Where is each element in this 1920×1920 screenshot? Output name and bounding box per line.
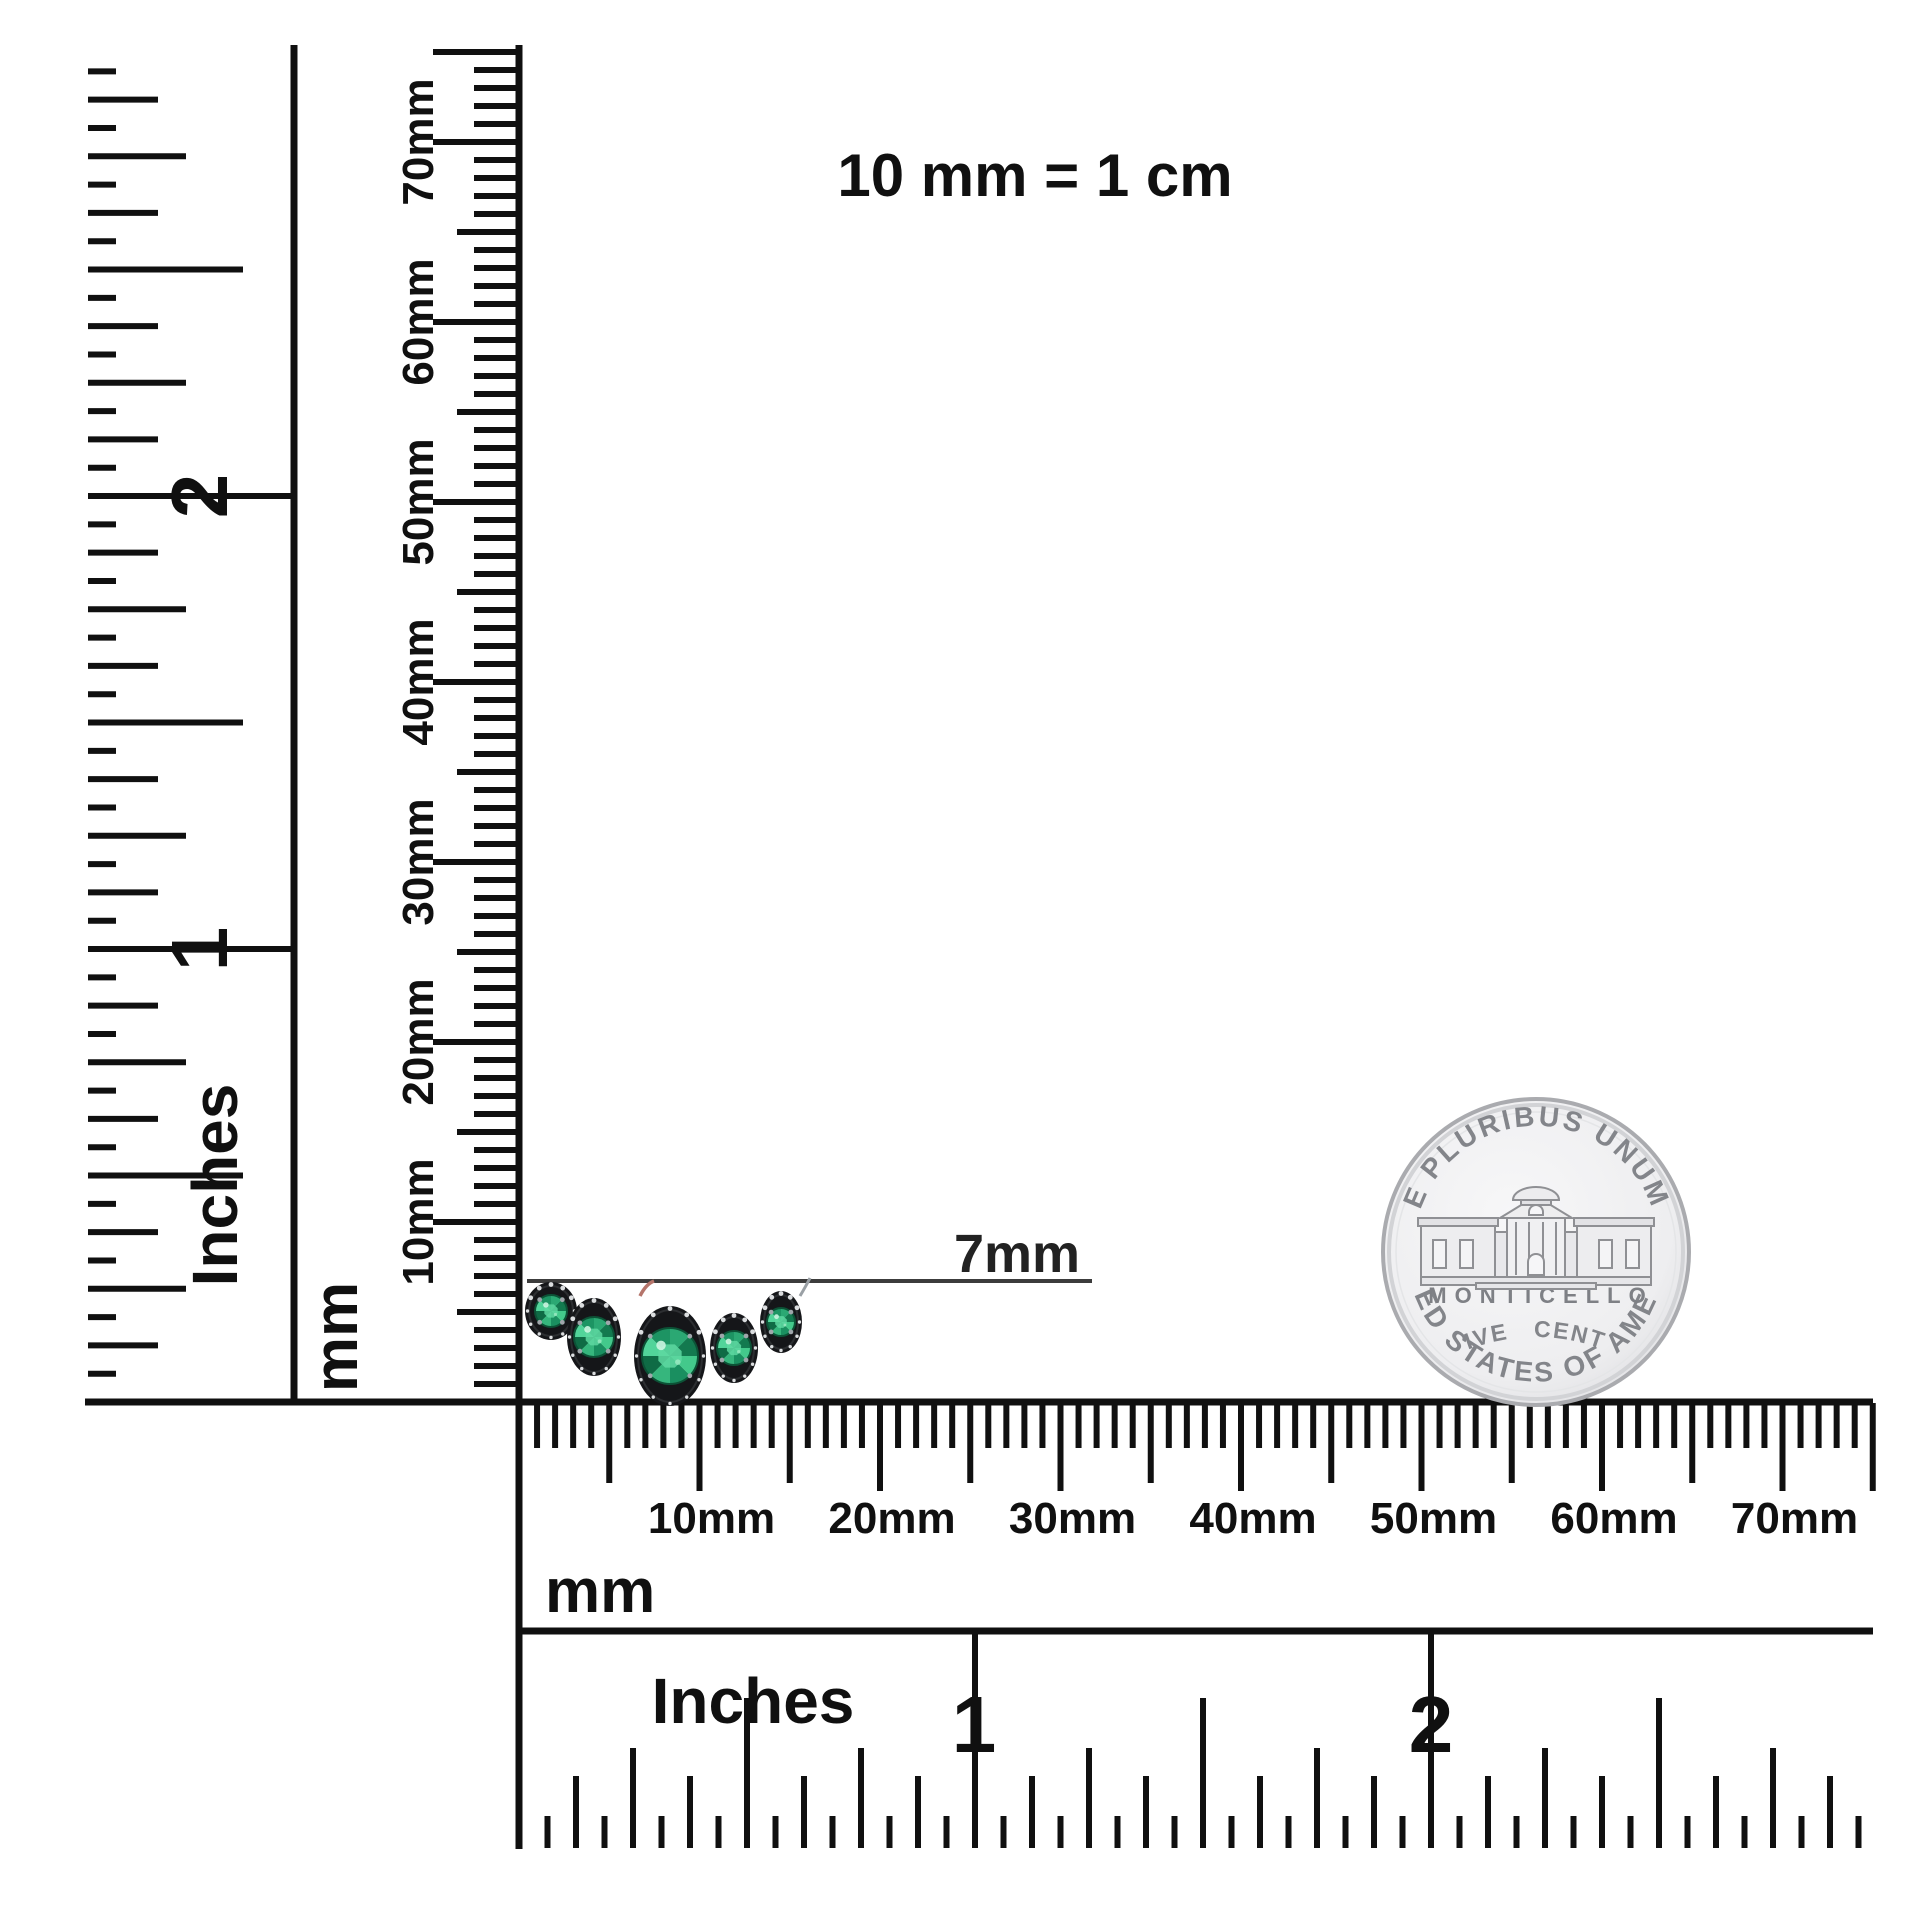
- halo-diamond-dot: [639, 1330, 644, 1335]
- halo-diamond-dot: [652, 1395, 655, 1398]
- mm-scale-label: 60mm: [1550, 1494, 1677, 1543]
- left-inches-ruler: 1 2 Inches: [88, 71, 297, 1373]
- halo-diamond-dot: [592, 1372, 595, 1375]
- left-mm-labels: 10mm20mm30mm40mm50mm60mm70mm: [394, 78, 443, 1285]
- mm-scale-label: 30mm: [394, 798, 443, 925]
- halo-diamond-dot: [613, 1316, 618, 1321]
- halo-diamond-dot: [549, 1282, 554, 1287]
- halo-diamond-dot: [763, 1335, 766, 1338]
- clasp-wire: [640, 1281, 654, 1296]
- building-steps: [1476, 1283, 1596, 1289]
- gem-glint: [656, 1341, 666, 1351]
- halo-diamond-dot: [788, 1295, 793, 1300]
- bottom-inches-number-2: 2: [1409, 1680, 1454, 1769]
- gem-glint: [675, 1359, 681, 1365]
- gem-glint: [737, 1350, 740, 1353]
- gem-glint: [584, 1326, 591, 1333]
- halo-diamond-dot: [779, 1291, 784, 1296]
- mm-scale-label: 10mm: [394, 1158, 443, 1285]
- halo-diamond-dot: [549, 1336, 552, 1339]
- gem-glint: [726, 1339, 732, 1345]
- halo-diamond-dot: [721, 1317, 726, 1322]
- mm-scale-label: 50mm: [394, 438, 443, 565]
- mm-scale-label: 20mm: [394, 978, 443, 1105]
- halo-diamond-dot: [604, 1303, 609, 1308]
- prong: [744, 1358, 749, 1363]
- halo-diamond-dot: [779, 1349, 782, 1352]
- mm-scale-label: 50mm: [1370, 1494, 1497, 1543]
- bottom-inches-ruler: 1 2 Inches: [548, 1633, 1859, 1848]
- halo-diamond-dot: [685, 1395, 688, 1398]
- halo-diamond-dot: [526, 1309, 529, 1312]
- ruler-frame: [85, 45, 1873, 1849]
- prong: [577, 1320, 582, 1325]
- left-parapet: [1418, 1218, 1498, 1226]
- halo-diamond-dot: [798, 1320, 801, 1323]
- halo-diamond-dot: [770, 1345, 773, 1348]
- halo-diamond-dot: [732, 1313, 737, 1318]
- prong: [648, 1334, 653, 1339]
- mm-scale-label: 40mm: [394, 618, 443, 745]
- prong: [788, 1329, 793, 1334]
- prong: [769, 1310, 774, 1315]
- left-mm-unit-label: mm: [302, 1282, 371, 1392]
- halo-diamond-dot: [668, 1402, 671, 1405]
- left-inches-unit-label: Inches: [179, 1084, 251, 1287]
- gem-glint: [598, 1339, 602, 1343]
- gem-glint: [774, 1314, 779, 1319]
- halo-diamond-dot: [769, 1295, 774, 1300]
- halo-diamond-dot: [795, 1335, 798, 1338]
- stone: [710, 1313, 758, 1383]
- halo-diamond-dot: [529, 1323, 532, 1326]
- halo-diamond-dot: [713, 1329, 718, 1334]
- right-parapet: [1574, 1218, 1654, 1226]
- halo-diamond-dot: [795, 1305, 800, 1310]
- halo-diamond-dot: [580, 1367, 583, 1370]
- halo-diamond-dot: [711, 1346, 714, 1349]
- halo-diamond-dot: [635, 1354, 638, 1357]
- measurement-annotation: 7mm: [527, 1224, 1092, 1284]
- halo-diamond-dot: [684, 1312, 689, 1317]
- mm-scale-label: 40mm: [1189, 1494, 1316, 1543]
- bottom-mm-unit-label: mm: [545, 1557, 655, 1626]
- halo-diamond-dot: [561, 1332, 564, 1335]
- gem-glint: [784, 1324, 787, 1327]
- halo-diamond-dot: [560, 1286, 565, 1291]
- window: [1599, 1240, 1612, 1268]
- halo-diamond-dot: [528, 1295, 533, 1300]
- pediment-window: [1529, 1205, 1543, 1215]
- bottom-inches-number-1: 1: [952, 1680, 997, 1769]
- prong: [560, 1320, 565, 1325]
- bottom-mm-ticks: [537, 1403, 1873, 1491]
- bottom-inches-unit-label: Inches: [652, 1665, 855, 1737]
- halo-diamond-dot: [714, 1363, 717, 1366]
- size-guide-diagram: 10 mm = 1 cm 1 2 Inches 10mm20mm30mm40mm…: [0, 0, 1920, 1920]
- halo-diamond-dot: [751, 1363, 754, 1366]
- halo-diamond-dot: [614, 1354, 617, 1357]
- diagram-canvas: 10 mm = 1 cm 1 2 Inches 10mm20mm30mm40mm…: [0, 0, 1920, 1920]
- mm-scale-label: 70mm: [394, 78, 443, 205]
- halo-diamond-dot: [743, 1374, 746, 1377]
- left-inches-number-2: 2: [155, 474, 244, 519]
- halo-diamond-dot: [537, 1286, 542, 1291]
- left-mm-ticks: [433, 52, 519, 1384]
- halo-diamond-dot: [639, 1378, 642, 1381]
- stone: [567, 1298, 621, 1376]
- prong: [744, 1334, 749, 1339]
- stone: [760, 1291, 802, 1353]
- halo-diamond-dot: [569, 1295, 574, 1300]
- halo-diamond-dot: [538, 1332, 541, 1335]
- prong: [606, 1349, 611, 1354]
- scale-note: 10 mm = 1 cm: [837, 142, 1232, 209]
- prong: [537, 1320, 542, 1325]
- halo-diamond-dot: [605, 1367, 608, 1370]
- halo-diamond-dot: [754, 1346, 757, 1349]
- prong: [560, 1297, 565, 1302]
- halo-diamond-dot: [732, 1379, 735, 1382]
- prong: [687, 1334, 692, 1339]
- halo-diamond-dot: [697, 1378, 700, 1381]
- prong: [720, 1358, 725, 1363]
- emerald-pendant: [525, 1282, 802, 1406]
- prong: [720, 1334, 725, 1339]
- window: [1460, 1240, 1473, 1268]
- halo-diamond-dot: [761, 1320, 764, 1323]
- halo-diamond-dot: [668, 1306, 673, 1311]
- left-inches-number-1: 1: [155, 927, 244, 972]
- window: [1433, 1240, 1446, 1268]
- halo-diamond-dot: [570, 1316, 575, 1321]
- prong: [788, 1310, 793, 1315]
- mm-scale-label: 60mm: [394, 258, 443, 385]
- halo-diamond-dot: [789, 1345, 792, 1348]
- mm-scale-label: 30mm: [1009, 1494, 1136, 1543]
- halo-diamond-dot: [750, 1329, 755, 1334]
- halo-diamond-dot: [697, 1330, 702, 1335]
- bottom-mm-labels: 10mm20mm30mm40mm50mm60mm70mm: [648, 1494, 1858, 1543]
- left-mm-ruler: 10mm20mm30mm40mm50mm60mm70mm mm: [302, 52, 519, 1392]
- mm-scale-label: 70mm: [1731, 1494, 1858, 1543]
- halo-diamond-dot: [702, 1354, 705, 1357]
- gem-glint: [554, 1313, 557, 1316]
- halo-diamond-dot: [617, 1335, 620, 1338]
- halo-diamond-dot: [568, 1335, 571, 1338]
- mm-scale-label: 20mm: [828, 1494, 955, 1543]
- bottom-mm-ruler: 10mm20mm30mm40mm50mm60mm70mm mm: [537, 1403, 1873, 1626]
- prong: [606, 1320, 611, 1325]
- halo-diamond-dot: [571, 1354, 574, 1357]
- prong: [577, 1349, 582, 1354]
- prong: [687, 1373, 692, 1378]
- prong: [648, 1373, 653, 1378]
- stone: [634, 1306, 706, 1406]
- mm-scale-label: 10mm: [648, 1494, 775, 1543]
- halo-diamond-dot: [592, 1298, 597, 1303]
- gem-glint: [543, 1302, 548, 1307]
- prong: [537, 1297, 542, 1302]
- window: [1626, 1240, 1639, 1268]
- halo-diamond-dot: [742, 1317, 747, 1322]
- nickel-coin: E PLURIBUS UNUM UNITED STATES OF AMERICA…: [0, 0, 1689, 1405]
- measurement-label: 7mm: [954, 1224, 1080, 1284]
- door-arch: [1528, 1254, 1544, 1275]
- halo-diamond-dot: [722, 1374, 725, 1377]
- halo-diamond-dot: [651, 1312, 656, 1317]
- halo-diamond-dot: [579, 1303, 584, 1308]
- halo-diamond-dot: [763, 1305, 768, 1310]
- prong: [769, 1329, 774, 1334]
